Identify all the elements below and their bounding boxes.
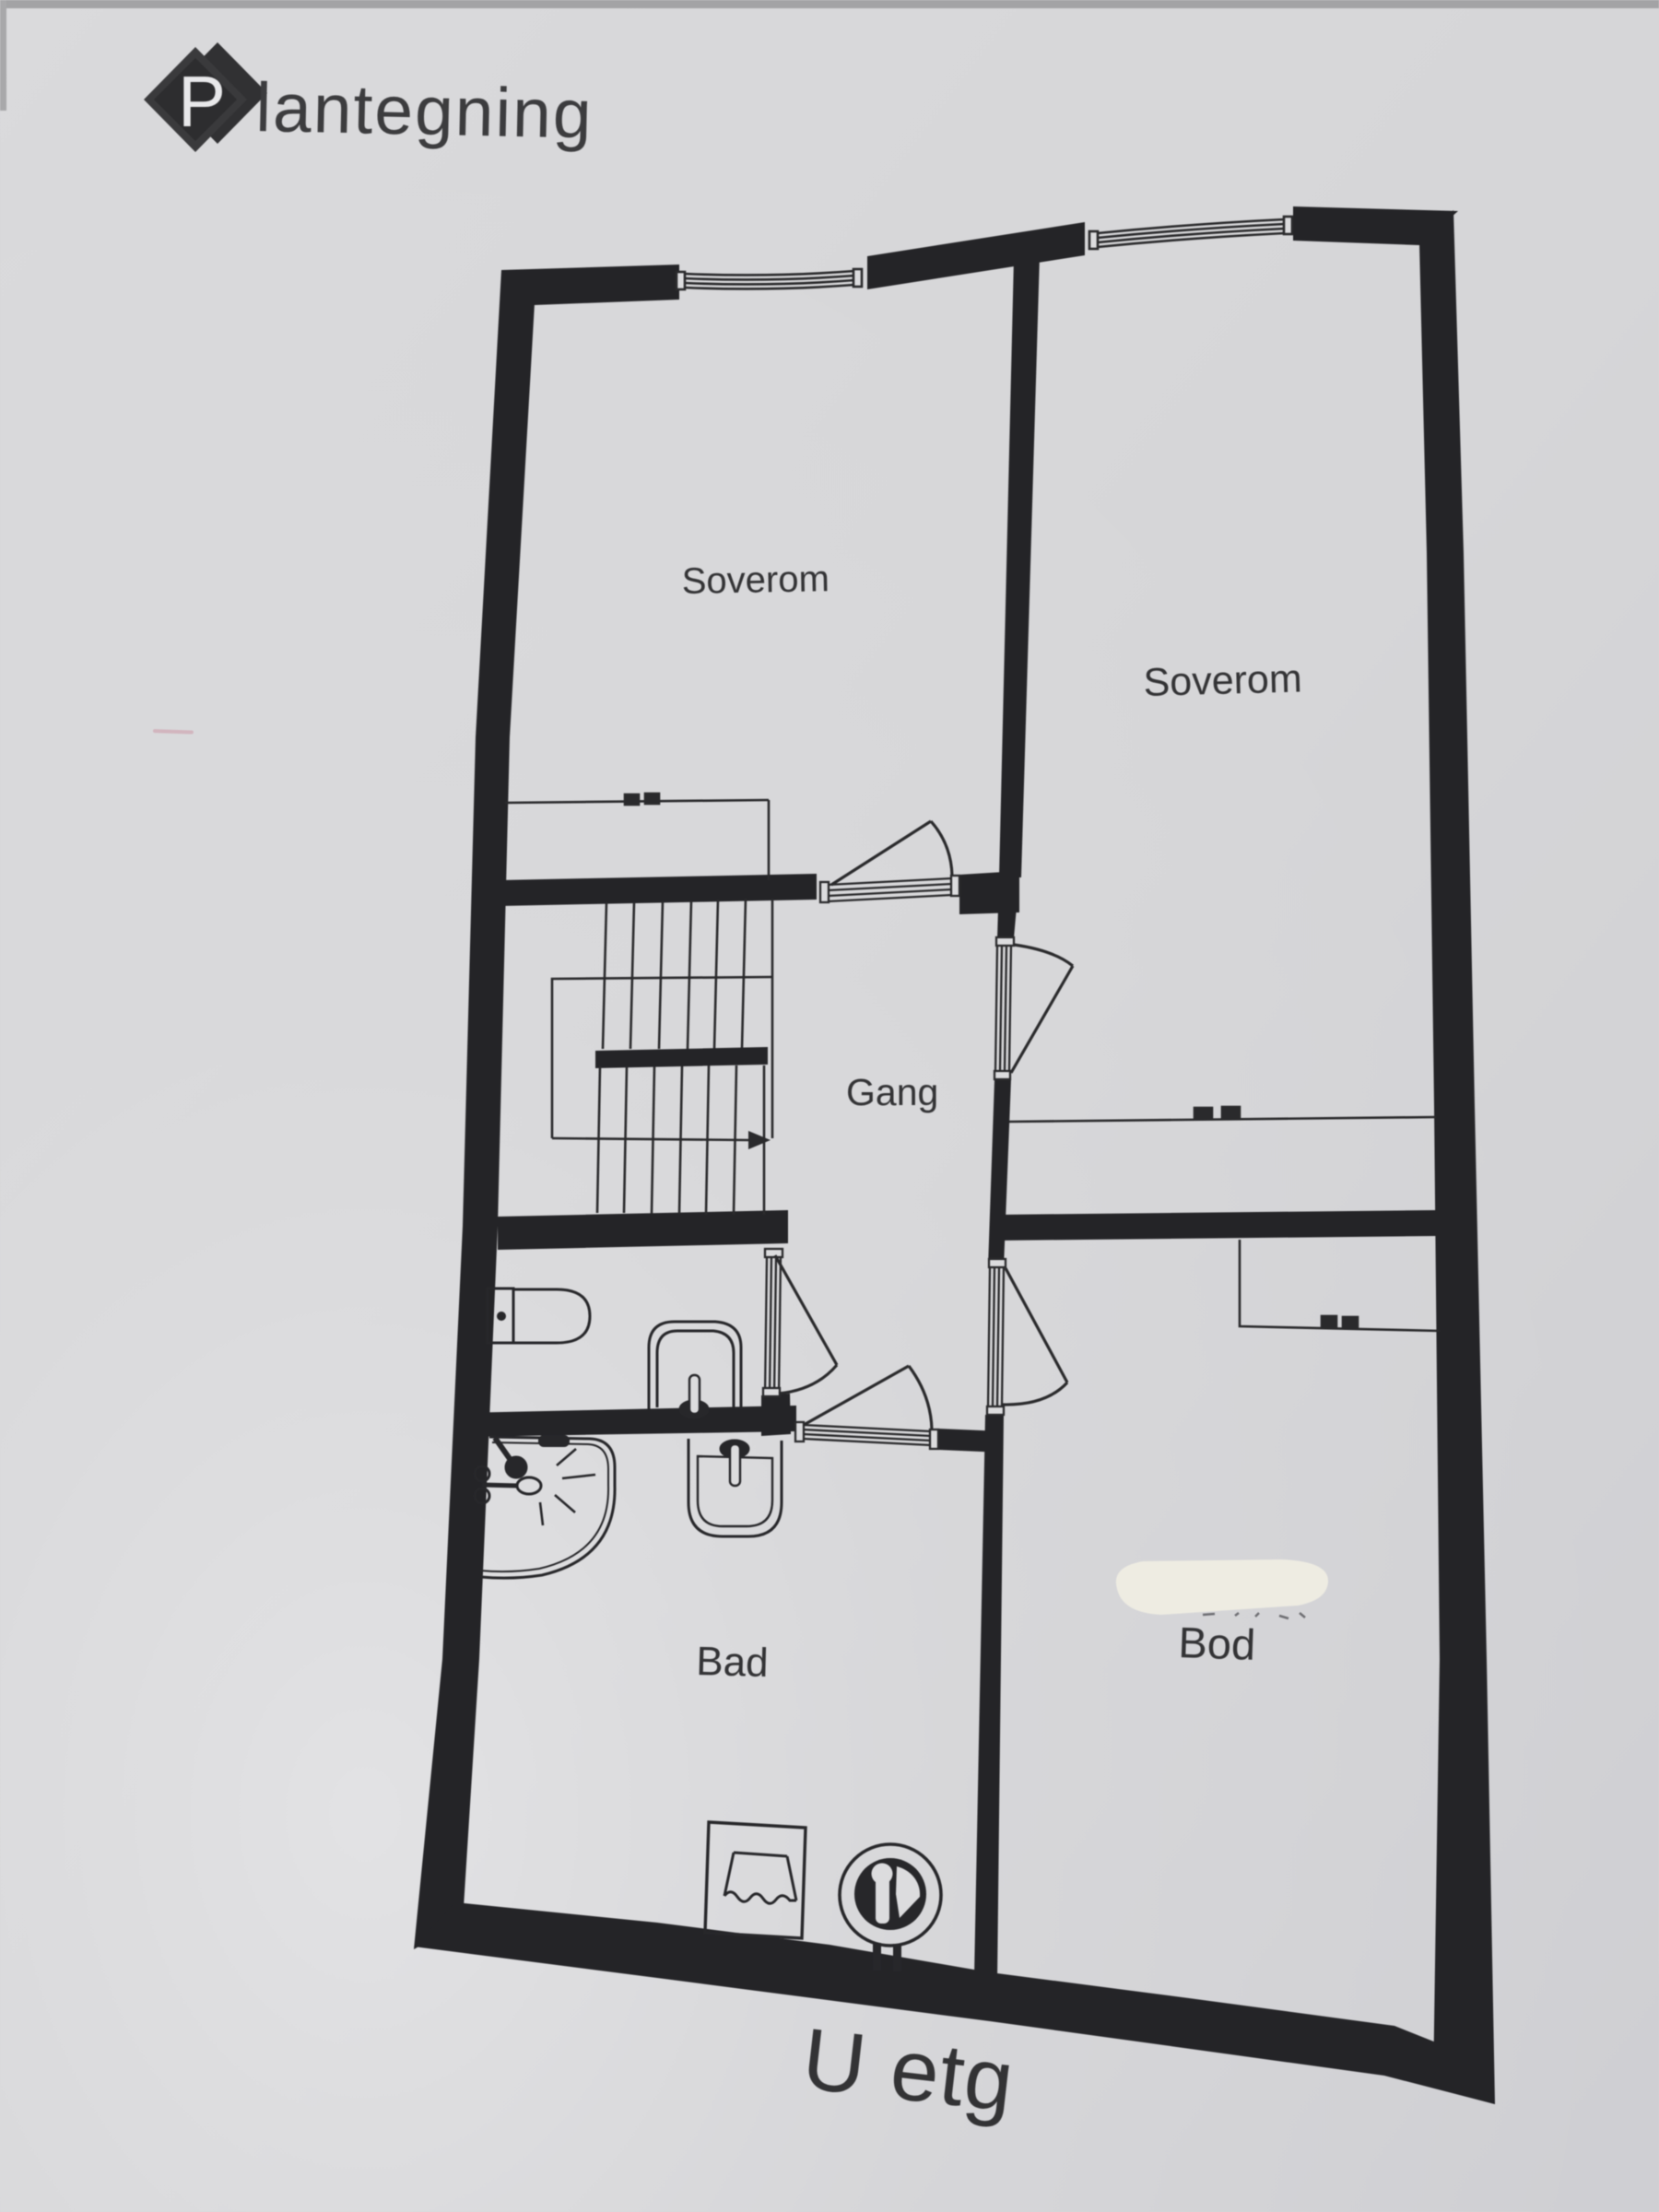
svg-text:lantegning: lantegning: [255, 68, 594, 153]
svg-text:Bod: Bod: [1178, 1618, 1256, 1669]
svg-text:Gang: Gang: [846, 1071, 938, 1113]
svg-text:P: P: [178, 61, 226, 142]
svg-text:Soverom: Soverom: [681, 559, 829, 602]
svg-text:Soverom: Soverom: [1143, 657, 1302, 705]
svg-text:Bad: Bad: [696, 1639, 770, 1686]
